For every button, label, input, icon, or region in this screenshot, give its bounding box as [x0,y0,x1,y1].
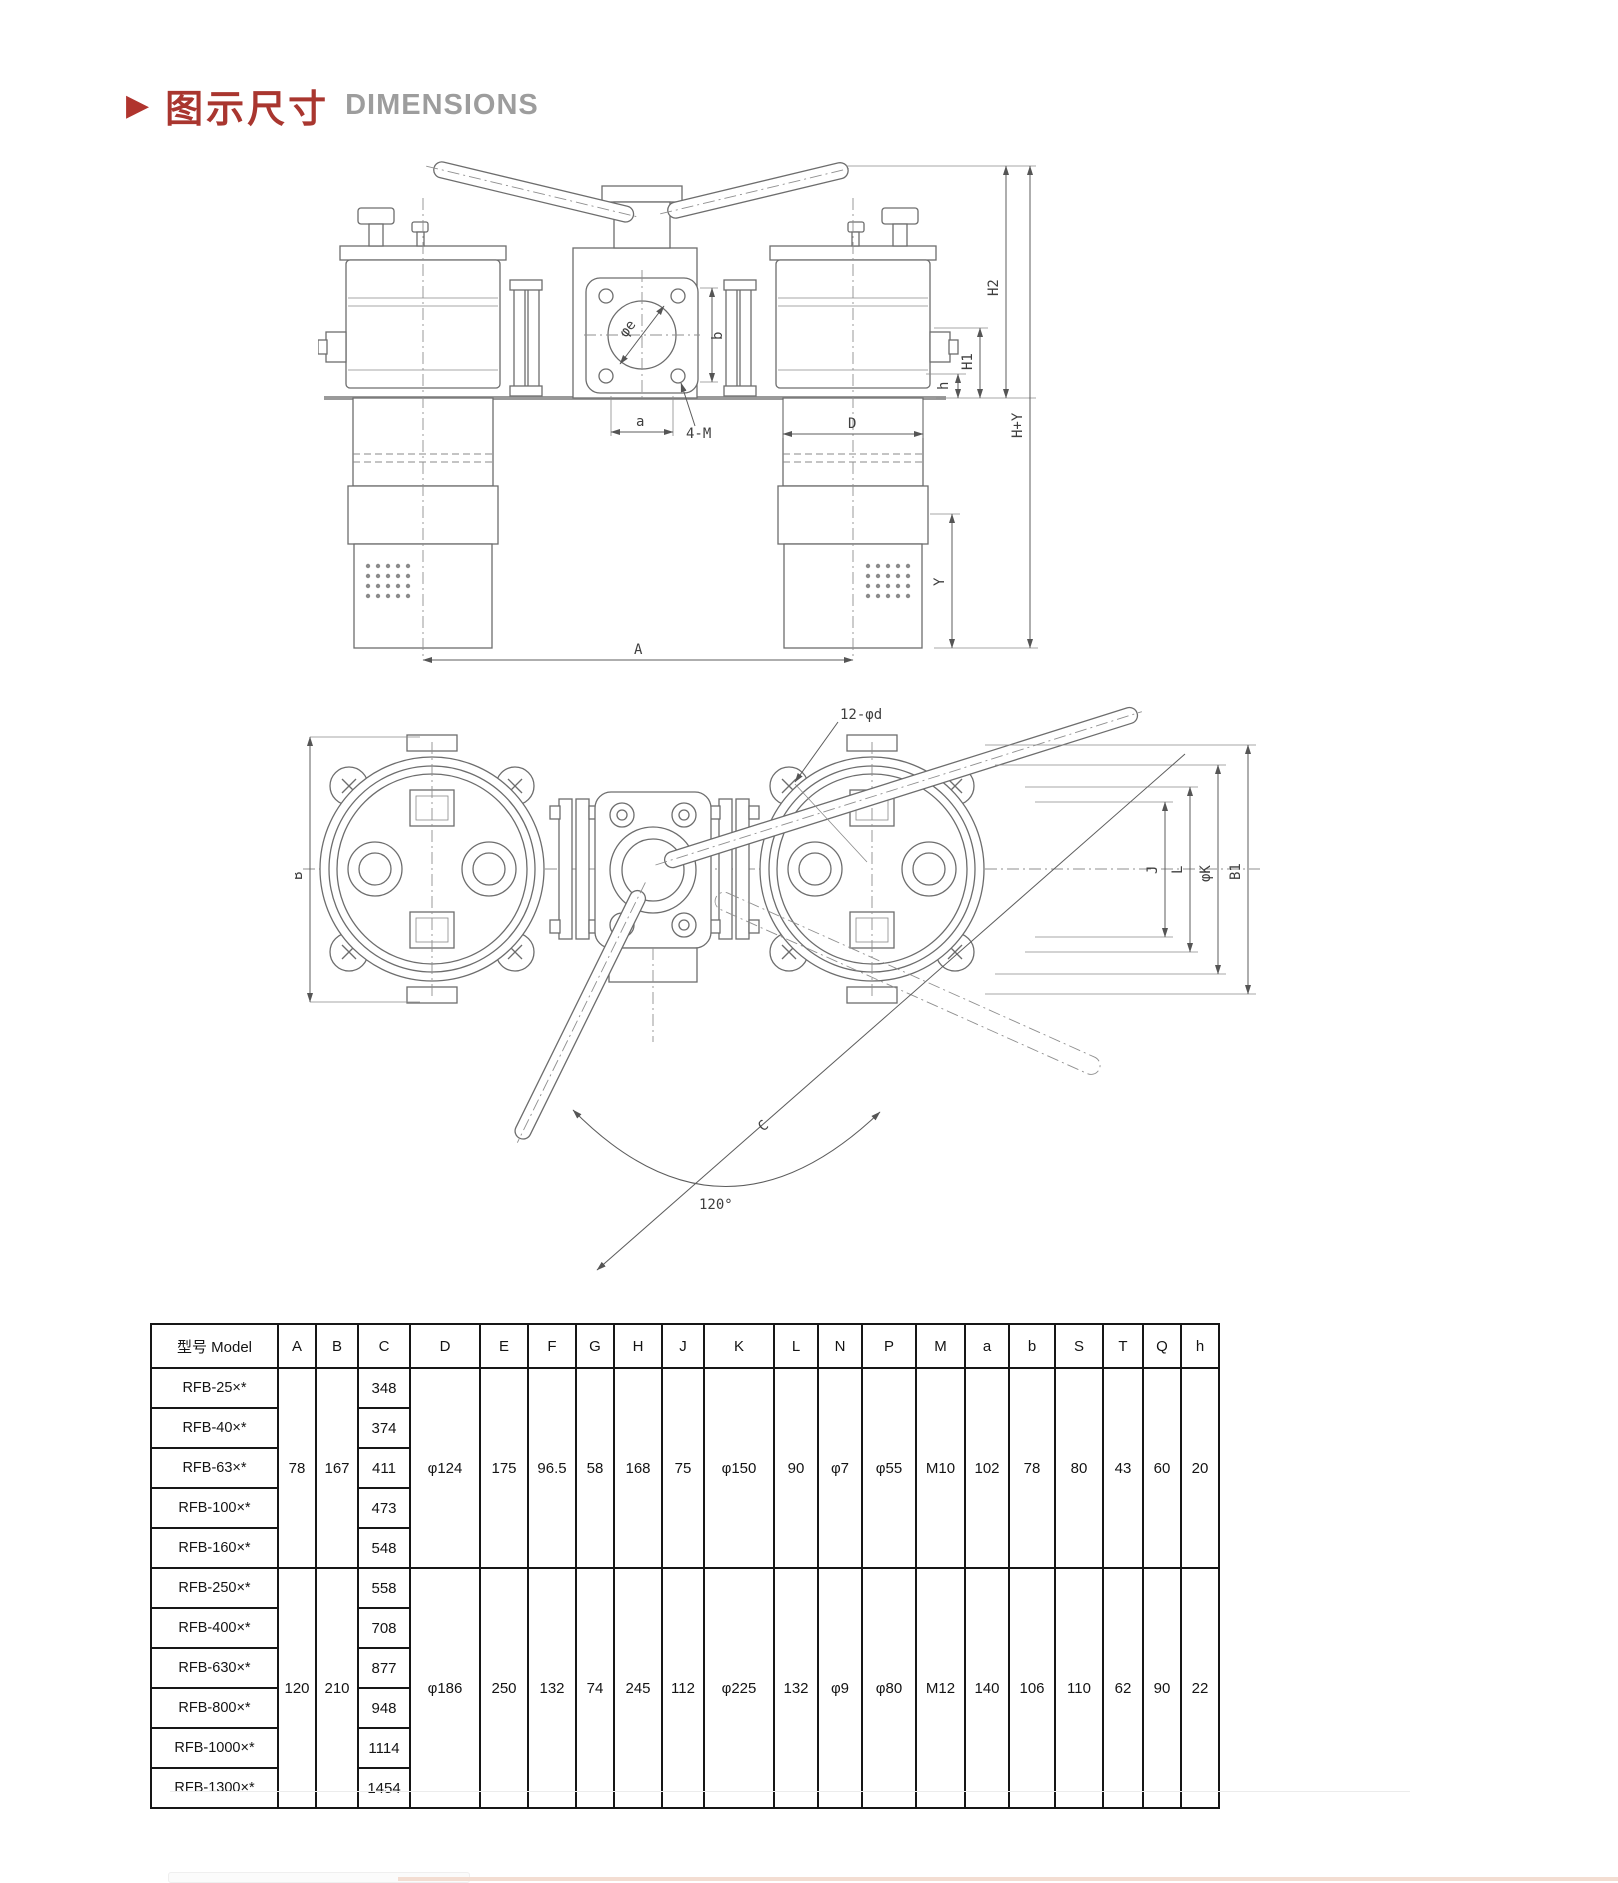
valve-body-top [595,792,711,1042]
model-cell: RFB-100×* [151,1488,278,1528]
value-cell: 175 [480,1368,528,1568]
value-cell: 1454 [358,1768,410,1808]
dim-label-h1: H1 [960,353,976,370]
side-port-flange [930,332,950,362]
value-cell: 62 [1103,1568,1143,1808]
value-cell: 411 [358,1448,410,1488]
model-cell: RFB-25×* [151,1368,278,1408]
value-cell: 168 [614,1368,662,1568]
cap-bolt [848,222,864,232]
left-filter-housing [318,198,506,660]
col-header: Q [1143,1324,1181,1368]
value-cell: 90 [1143,1568,1181,1808]
front-view-dimensions: h H1 H2 H+Y Y D a 4-M b φe [423,166,1038,660]
cap-bolt [412,222,428,232]
value-cell: φ55 [862,1368,916,1568]
right-filter-housing [770,198,958,660]
value-cell: 1114 [358,1728,410,1768]
col-header: B [316,1324,358,1368]
model-cell: RFB-160×* [151,1528,278,1568]
value-cell: 250 [480,1568,528,1808]
value-cell: 106 [1009,1568,1055,1808]
value-cell: 132 [774,1568,818,1808]
value-cell: 102 [965,1368,1009,1568]
value-cell: 132 [528,1568,576,1808]
value-cell: φ186 [410,1568,480,1808]
value-cell: 877 [358,1648,410,1688]
table-row: RFB-250×* 120 210 558 φ186 250 132 74 24… [151,1568,1219,1608]
value-cell: 110 [1055,1568,1103,1808]
table-row: RFB-25×* 78 167 348 φ124 175 96.5 58 168… [151,1368,1219,1408]
value-cell: 245 [614,1568,662,1808]
value-cell: 948 [358,1688,410,1728]
col-header: N [818,1324,862,1368]
model-cell: RFB-63×* [151,1448,278,1488]
value-cell: φ7 [818,1368,862,1568]
right-pipe-flange [724,280,756,396]
front-view-drawing: h H1 H2 H+Y Y D a 4-M b φe [318,138,1048,678]
section-title: ▶ 图示尺寸 DIMENSIONS [126,78,539,133]
col-header: S [1055,1324,1103,1368]
value-cell: φ9 [818,1568,862,1808]
value-cell: M10 [916,1368,965,1568]
value-cell: 348 [358,1368,410,1408]
dim-label-b-small: b [710,332,726,340]
dim-label-hole-spec: 12-φd [840,707,882,723]
model-cell: RFB-630×* [151,1648,278,1688]
col-header: h [1181,1324,1219,1368]
value-cell: 374 [358,1408,410,1448]
value-cell: 75 [662,1368,704,1568]
value-cell: M12 [916,1568,965,1808]
catalog-page: ▶ 图示尺寸 DIMENSIONS [0,0,1618,1883]
valve-hub [602,186,682,202]
col-header: T [1103,1324,1143,1368]
value-cell: 120 [278,1568,316,1808]
model-cell: RFB-400×* [151,1608,278,1648]
section-title-chinese: 图示尺寸 [165,78,329,133]
col-header: L [774,1324,818,1368]
dim-label-h-small: h [936,382,952,390]
dimensions-table: 型号 Model A B C D E F G H J K L N P M a b… [150,1323,1220,1809]
dim-label-y: Y [932,577,948,586]
flange-bolt-hole [599,289,613,303]
value-cell: 96.5 [528,1368,576,1568]
flange-bolt-hole [671,289,685,303]
value-cell: 22 [1181,1568,1219,1808]
value-cell: 74 [576,1568,614,1808]
footer-rule-artifact [398,1877,1618,1881]
value-cell: 708 [358,1608,410,1648]
col-header: H [614,1324,662,1368]
left-pipe-flange [510,280,542,396]
col-header: F [528,1324,576,1368]
model-cell: RFB-250×* [151,1568,278,1608]
value-cell: 210 [316,1568,358,1808]
dim-label-d: D [848,416,856,432]
value-cell: φ225 [704,1568,774,1808]
value-cell: φ150 [704,1368,774,1568]
col-header: A [278,1324,316,1368]
side-port-flange [326,332,346,362]
changeover-valve-body [573,186,700,400]
value-cell: 60 [1143,1368,1181,1568]
value-cell: 78 [278,1368,316,1568]
col-header: C [358,1324,410,1368]
value-cell: 90 [774,1368,818,1568]
vent-knob [882,208,918,224]
dim-label-k: φK [1198,865,1214,882]
col-header-model: 型号 Model [151,1324,278,1368]
triangle-bullet-icon: ▶ [126,91,149,121]
dim-label-a-small: a [636,414,644,430]
dim-label-angle: 120° [699,1197,733,1213]
dim-label-j: J [1145,866,1161,874]
section-title-english: DIMENSIONS [345,89,539,122]
flange-bolt-hole [599,369,613,383]
dim-label-bolt-spec: 4-M [686,426,711,442]
value-cell: 167 [316,1368,358,1568]
table-header-row: 型号 Model A B C D E F G H J K L N P M a b… [151,1324,1219,1368]
value-cell: 473 [358,1488,410,1528]
model-cell: RFB-1300×* [151,1768,278,1808]
value-cell: 43 [1103,1368,1143,1568]
value-cell: 112 [662,1568,704,1808]
dim-label-a-total: A [634,642,643,658]
flange-bolt-hole [671,369,685,383]
value-cell: 78 [1009,1368,1055,1568]
model-cell: RFB-1000×* [151,1728,278,1768]
dim-label-b: B [295,872,306,880]
value-cell: 80 [1055,1368,1103,1568]
value-cell: 20 [1181,1368,1219,1568]
left-cover [320,735,544,1003]
model-cell: RFB-800×* [151,1688,278,1728]
dim-label-h-plus-y: H+Y [1010,412,1026,438]
value-cell: φ124 [410,1368,480,1568]
vent-knob [358,208,394,224]
value-cell: φ80 [862,1568,916,1808]
col-header: b [1009,1324,1055,1368]
value-cell: 558 [358,1568,410,1608]
value-cell: 58 [576,1368,614,1568]
col-header: a [965,1324,1009,1368]
col-header: M [916,1324,965,1368]
top-view-drawing: 12-φd B J L φK B1 120° C [295,702,1270,1277]
col-header: K [704,1324,774,1368]
col-header: P [862,1324,916,1368]
value-cell: 548 [358,1528,410,1568]
value-cell: 140 [965,1568,1009,1808]
col-header: E [480,1324,528,1368]
col-header: D [410,1324,480,1368]
dim-label-b1: B1 [1228,863,1244,880]
dim-label-l: L [1170,866,1186,874]
col-header: G [576,1324,614,1368]
model-cell: RFB-40×* [151,1408,278,1448]
col-header: J [662,1324,704,1368]
faint-divider [170,1791,1410,1792]
dim-label-h2: H2 [986,279,1002,296]
dim-label-c: C [755,1117,772,1135]
valve-handle-right [660,161,853,220]
